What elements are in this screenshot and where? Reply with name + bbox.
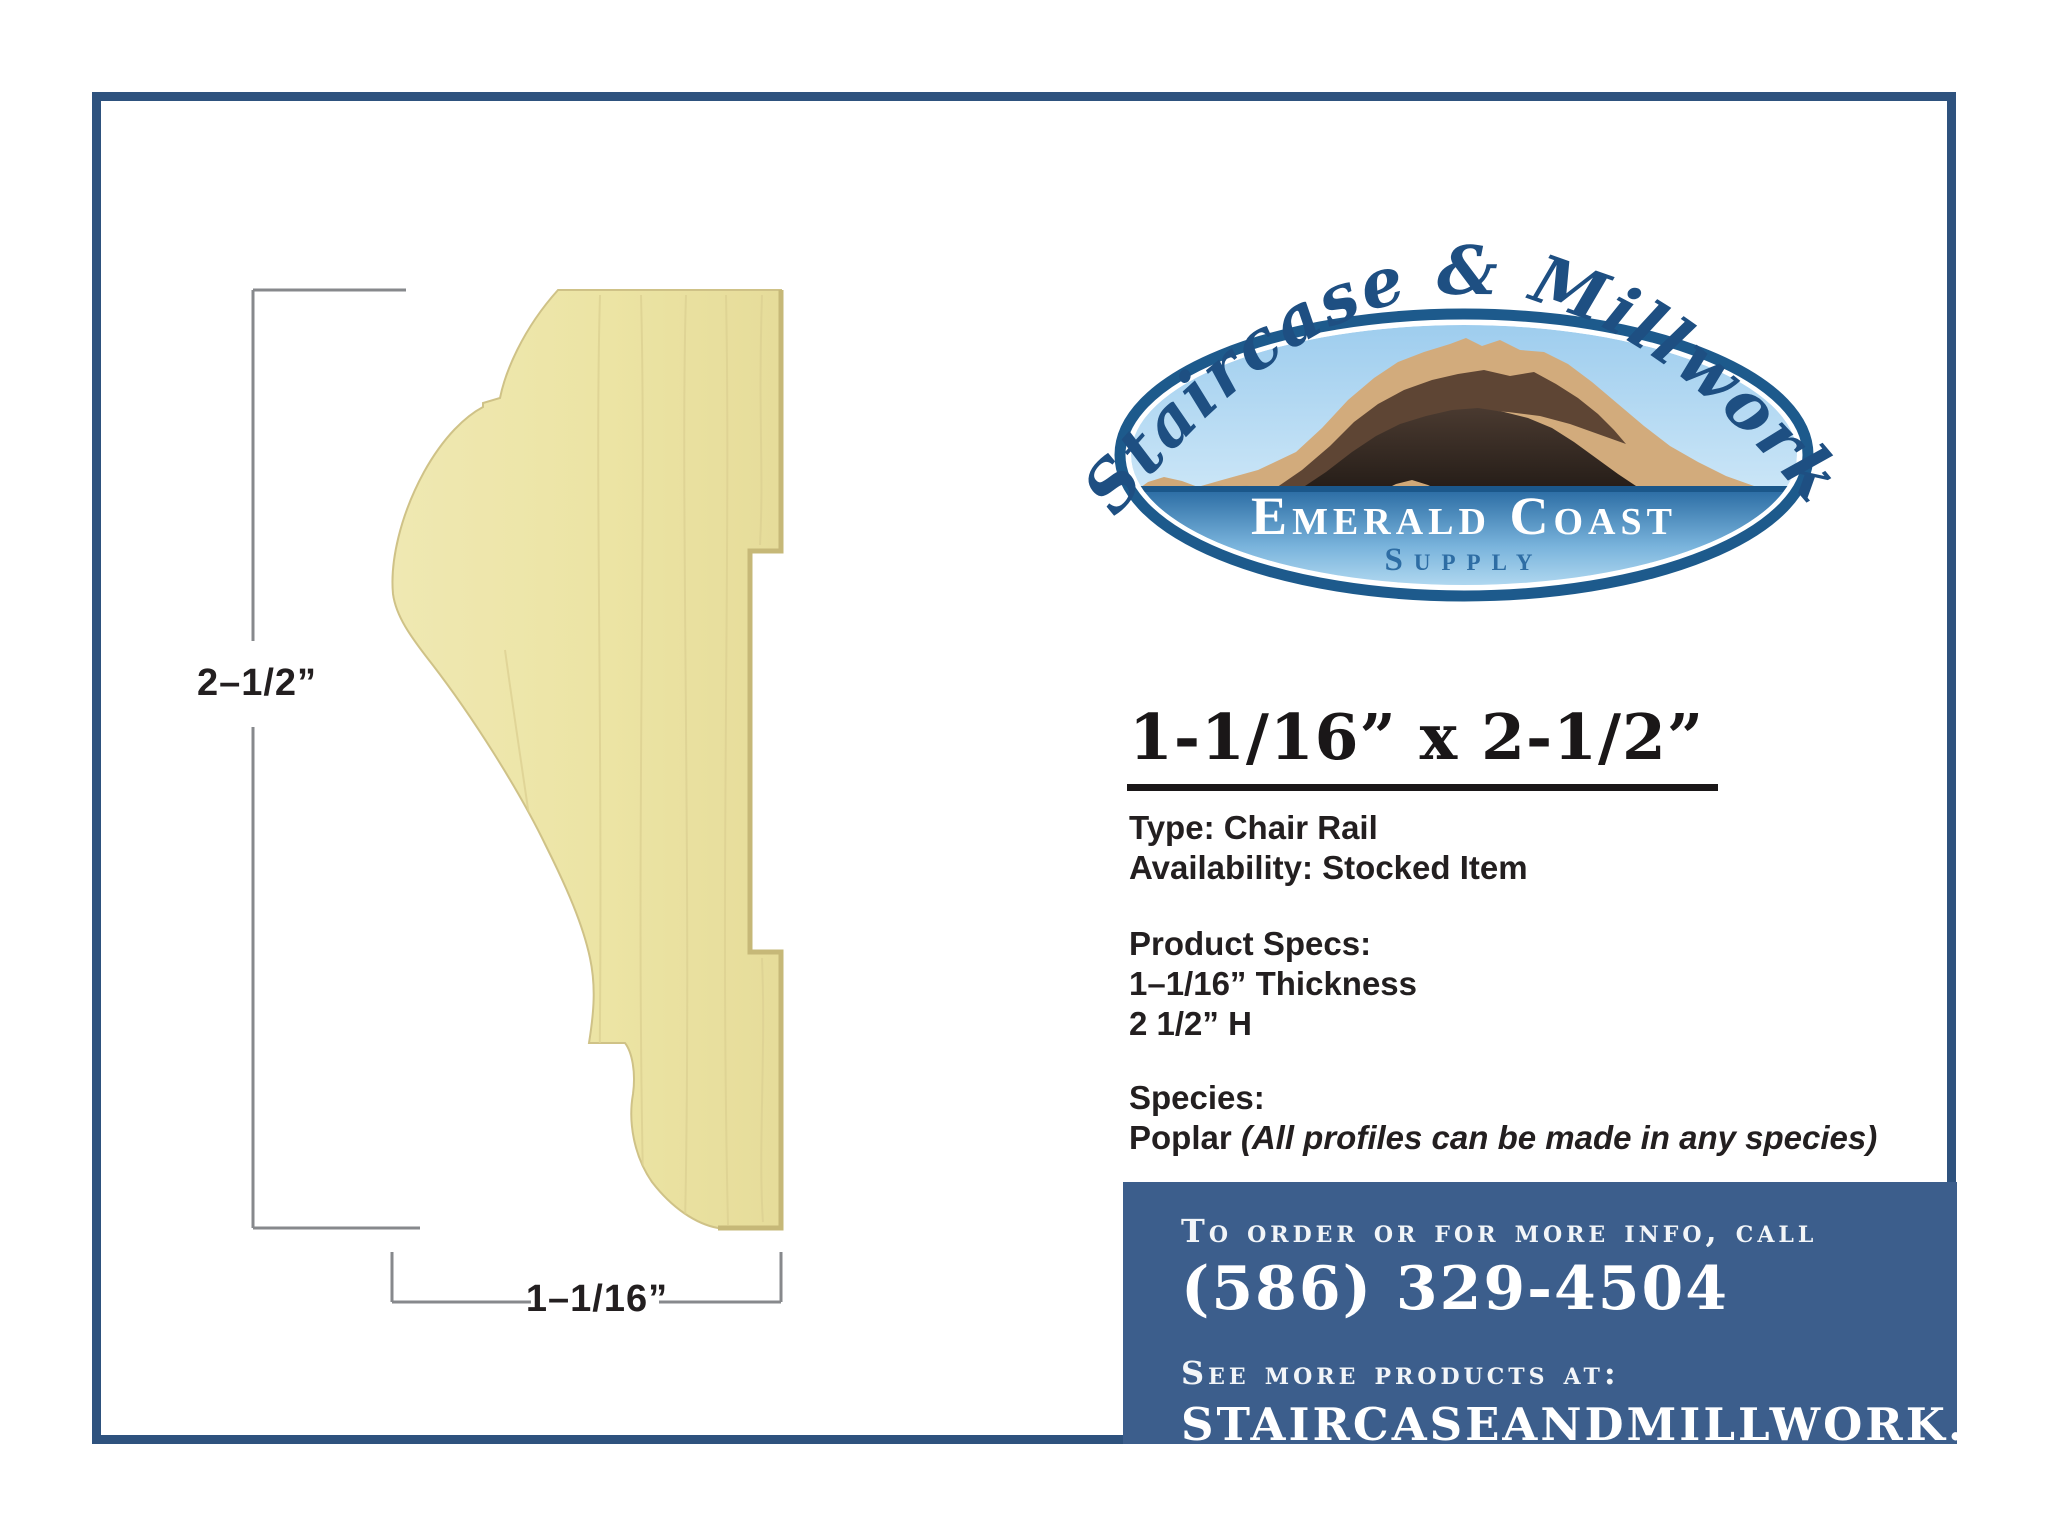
website-link[interactable]: STAIRCASEANDMILLWORK.COM xyxy=(1181,1398,1937,1451)
species-value: Poplar xyxy=(1129,1119,1241,1156)
molding-profile-drawing xyxy=(100,240,860,1350)
see-more-heading: See more products at: xyxy=(1181,1354,1937,1392)
product-availability: Availability: Stocked Item xyxy=(1129,848,1949,888)
phone-number[interactable]: (586) 329-4504 xyxy=(1181,1254,1937,1324)
molding-cross-section xyxy=(392,290,781,1228)
width-dimension-label: 1–1/16” xyxy=(487,1278,707,1321)
height-dimension-label: 2–1/2” xyxy=(147,662,367,705)
spec-sheet-page: 2–1/2” 1–1/16” xyxy=(0,0,2048,1536)
emblem-subtitle: Supply xyxy=(1385,542,1544,578)
spec-thickness: 1–1/16” Thickness xyxy=(1129,964,1949,1004)
product-type: Type: Chair Rail xyxy=(1129,808,1949,848)
contact-info-box: To order or for more info, call (586) 32… xyxy=(1123,1182,1957,1444)
species-line: Poplar (All profiles can be made in any … xyxy=(1129,1118,1949,1158)
emblem-title: Emerald Coast xyxy=(1251,486,1677,546)
species-heading: Species: xyxy=(1129,1078,1949,1118)
product-specs-heading: Product Specs: xyxy=(1129,924,1949,964)
company-logo: Emerald Coast Supply Staircase & Millwor… xyxy=(1050,170,1950,650)
product-size-title: 1-1/16” x 2-1/2” xyxy=(1127,700,1718,791)
species-note: (All profiles can be made in any species… xyxy=(1241,1119,1877,1156)
spec-height: 2 1/2” H xyxy=(1129,1004,1949,1044)
order-heading: To order or for more info, call xyxy=(1181,1212,1937,1250)
product-info-block: Type: Chair Rail Availability: Stocked I… xyxy=(1129,808,1949,1158)
